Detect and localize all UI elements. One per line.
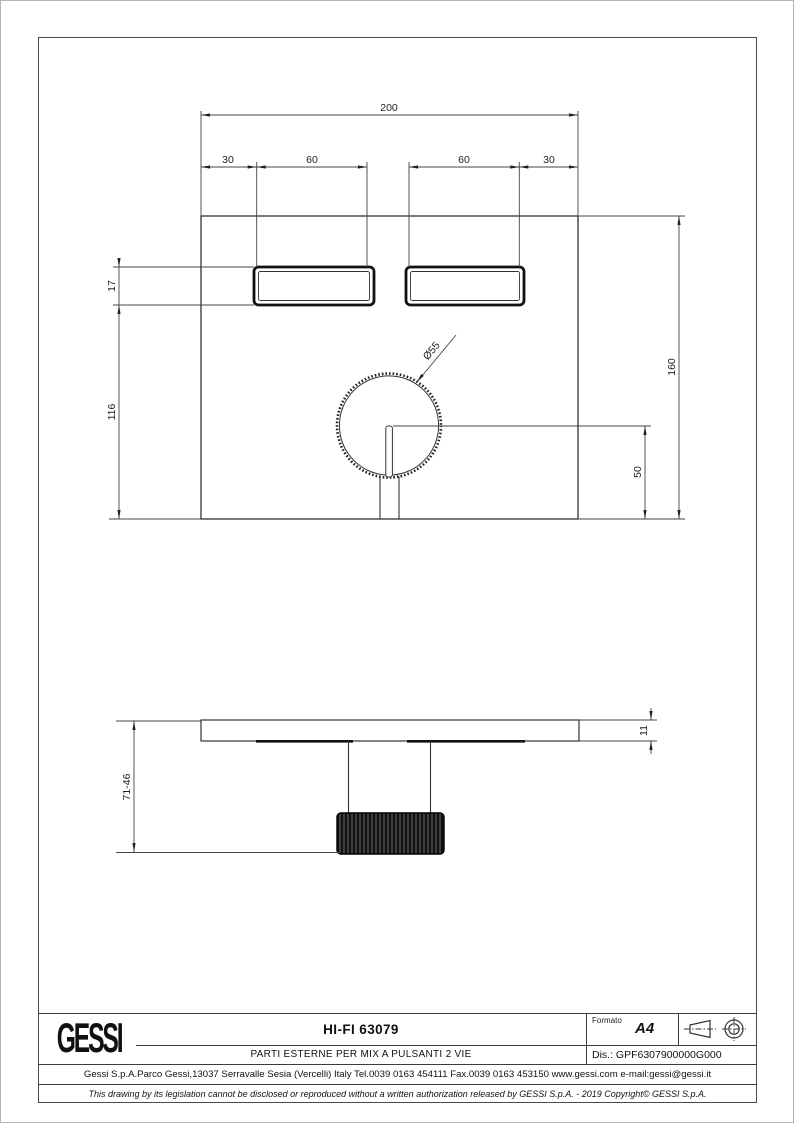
side-view: 71-46 11 — [116, 708, 657, 854]
format-label: Formato — [592, 1016, 622, 1025]
format-value: A4 — [635, 1020, 654, 1037]
drawing-sheet: 200 30 60 60 30 17 116 160 50 Ø55 — [0, 0, 794, 1123]
plate-side-outline — [201, 720, 579, 741]
dim-overall-height: 160 — [666, 358, 678, 376]
product-code: HI-FI 63079 — [137, 1014, 585, 1044]
knurled-knob-side — [337, 813, 444, 854]
dim-button1-width: 60 — [306, 154, 318, 166]
dim-button-to-bottom: 116 — [106, 403, 118, 420]
legal-disclaimer: This drawing by its legislation cannot b… — [38, 1084, 757, 1103]
dim-plate-thickness: 11 — [638, 725, 650, 736]
gessi-logo-text: GESSI — [57, 1016, 122, 1062]
dim-overall-width: 200 — [380, 102, 398, 114]
drawing-description: PARTI ESTERNE PER MIX A PULSANTI 2 VIE — [137, 1045, 585, 1064]
first-angle-projection-icon — [682, 1015, 754, 1043]
dim-knob-offset: 50 — [632, 466, 644, 478]
button-left — [254, 267, 374, 305]
dim-button-height: 17 — [106, 280, 118, 292]
gessi-logo: GESSI — [43, 1016, 135, 1062]
company-address: Gessi S.p.A.Parco Gessi,13037 Serravalle… — [38, 1064, 757, 1084]
projection-symbol-cell — [679, 1014, 756, 1044]
format-cell: Formato A4 — [587, 1014, 677, 1044]
drawing-number: Dis.: GPF6307900000G000 — [587, 1045, 756, 1064]
dim-total-depth: 71-46 — [121, 773, 133, 800]
dim-left-margin: 30 — [222, 154, 234, 166]
dim-button2-width: 60 — [458, 154, 470, 166]
top-view: 200 30 60 60 30 17 116 160 50 Ø55 — [106, 102, 685, 519]
drawing-canvas: 200 30 60 60 30 17 116 160 50 Ø55 — [1, 1, 794, 1124]
dim-right-margin: 30 — [543, 154, 555, 166]
knob-indicator-slot — [386, 426, 393, 477]
button-right — [406, 267, 524, 305]
